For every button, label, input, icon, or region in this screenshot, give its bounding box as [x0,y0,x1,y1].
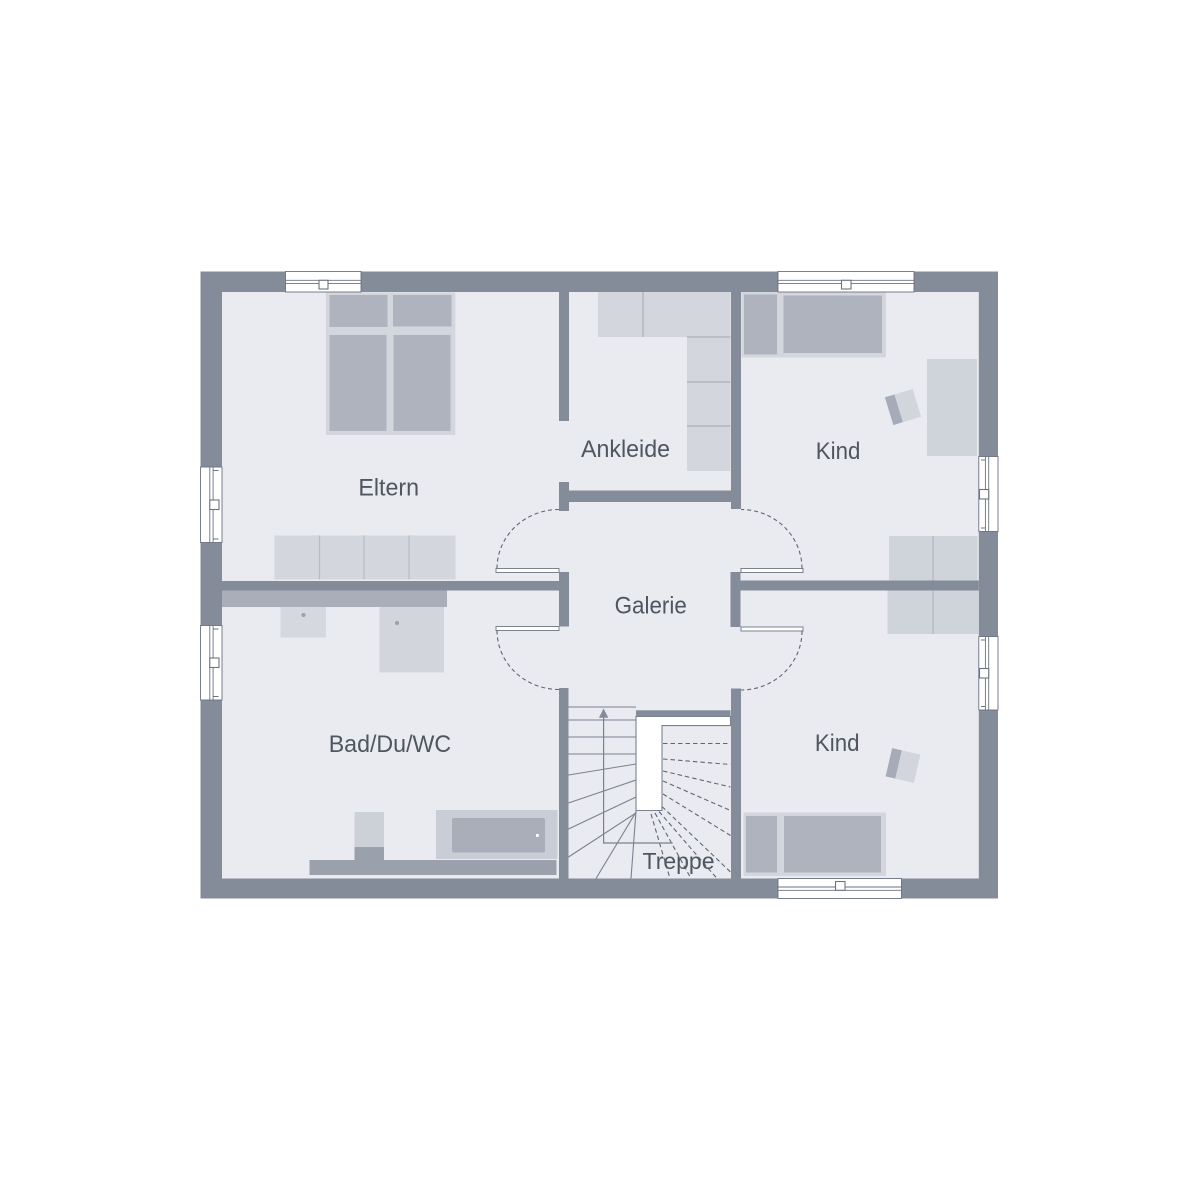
svg-text:Kind: Kind [815,730,860,757]
svg-text:Kind: Kind [816,438,861,465]
svg-text:Galerie: Galerie [615,593,687,620]
svg-text:Ankleide: Ankleide [581,436,670,463]
svg-text:Eltern: Eltern [358,475,419,502]
svg-text:Bad/Du/WC: Bad/Du/WC [329,731,452,758]
svg-text:Treppe: Treppe [643,848,715,874]
